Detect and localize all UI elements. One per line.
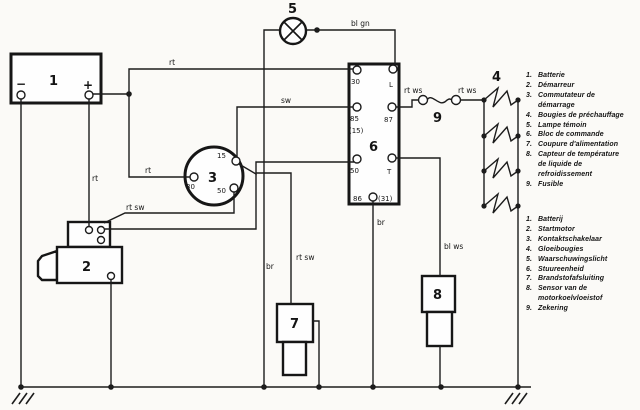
unit-terminal-85 [353,103,361,111]
legend-item-text: Lampe témoin [538,121,587,131]
starter-terminal-b [98,227,105,234]
legend-item: 8.Capteur de température de liquide de r… [526,150,638,180]
battery-minus-terminal [17,91,25,99]
wire-label-rt-top: rt [169,58,175,67]
glow-plug-4-icon [484,194,518,213]
legend-item-number: 7. [526,274,538,284]
unit-terminal-86 [369,193,377,201]
wire-label-rt-sw-cutoff: rt sw [296,253,314,262]
unit-86-label: 86 [353,195,362,203]
legend-french: 1.Batterie2.Démarreur3.Commutateur de dé… [526,71,638,190]
unit-terminal-87 [388,103,396,111]
legend-item-number: 5. [526,255,538,265]
unit-T-label: T [386,168,392,176]
legend-item: 5.Lampe témoin [526,121,638,131]
fuel-cutoff-id: 7 [290,317,299,332]
wire-label-bl-ws: bl ws [444,242,463,251]
unit-87-label: 87 [384,116,393,124]
fuse-terminal-left [419,96,428,105]
wire-label-sw: sw [281,96,291,105]
unit-85-label: 85 [350,115,359,123]
battery-id: 1 [49,74,58,89]
wire-bl-gn-lamp-unitL [306,30,395,65]
legend-item: 4.Gloeibougies [526,245,638,255]
ground-symbol-left [12,393,34,404]
warning-lamp-icon [280,18,306,44]
switch-terminal-15 [232,157,240,165]
legend-item-text: Bougies de préchauffage [538,111,624,121]
glow-plug-2-icon [484,124,518,143]
switch-id: 3 [208,171,217,186]
control-unit-id: 6 [369,140,378,155]
lamp-id: 5 [288,2,297,17]
starter-ground-terminal [108,273,115,280]
legend-item: 5.Waarschuwingslicht [526,255,638,265]
unit-terminal-50 [353,155,361,163]
legend-item-number: 4. [526,111,538,121]
legend-item-number: 2. [526,81,538,91]
unit-terminal-30 [353,66,361,74]
wire-label-bl-gn: bl gn [351,19,370,28]
wire-label-rt-mid: rt [145,166,151,175]
wiring-diagram-page: 1 − + 2 3 4 5 6 7 8 9 15 30 50 30 L 85 (… [0,0,640,410]
switch-terminal-30 [190,173,198,181]
ground-symbol-right [505,393,527,404]
legend-item-number: 6. [526,130,538,140]
legend-item: 6.Stuureenheid [526,265,638,275]
legend-item-number: 3. [526,91,538,111]
unit-terminal-T [388,154,396,162]
legend-item: 9.Fusible [526,180,638,190]
legend-item: 8.Sensor van de motorkoelvloeistof [526,284,638,304]
wire-label-br-unit: br [377,218,386,227]
temp-sensor-lower-box [427,312,452,346]
legend-item-text: Kontaktschakelaar [538,235,602,245]
unit-31-label: (31) [378,195,393,203]
legend-item: 4.Bougies de préchauffage [526,111,638,121]
wiring-diagram: 1 − + 2 3 4 5 6 7 8 9 15 30 50 30 L 85 (… [0,0,640,410]
legend-item-number: 1. [526,215,538,225]
legend-item-text: Démarreur [538,81,574,91]
legend-item: 1.Batterie [526,71,638,81]
legend-item: 7.Coupure d'alimentation [526,140,638,150]
legend-item-text: Brandstofafsluiting [538,274,604,284]
legend-item-text: Batterie [538,71,565,81]
legend-item-number: 6. [526,265,538,275]
switch-50-label: 50 [217,187,226,195]
switch-30-label: 30 [186,183,195,191]
wire-label-rt-ws-right: rt ws [458,86,477,95]
legend-item: 6.Bloc de commande [526,130,638,140]
legend-item-text: Commutateur de démarrage [538,91,595,111]
legend-item-text: Batterij [538,215,563,225]
legend-item-number: 7. [526,140,538,150]
fuel-cutoff-lower-box [283,342,306,375]
glow-plug-1-icon [484,88,518,107]
legend-item-number: 4. [526,245,538,255]
legend-item-text: Capteur de température de liquide de ref… [538,150,619,180]
legend-item-text: Stuureenheid [538,265,584,275]
starter-nose [38,251,57,280]
temp-sensor-id: 8 [433,288,442,303]
battery-plus-terminal [85,91,93,99]
legend-item: 2.Démarreur [526,81,638,91]
glow-plug-3-icon [484,159,518,178]
fuse-terminal-right [452,96,461,105]
wire-label-rt-sw-starter: rt sw [126,203,144,212]
legend-item-text: Waarschuwingslicht [538,255,607,265]
fuel-cutoff [277,304,313,375]
legend-item-text: Fusible [538,180,563,190]
wire-label-rt-ws-left: rt ws [404,86,423,95]
unit-50-label: 50 [350,167,359,175]
legend-item-number: 2. [526,225,538,235]
wire-label-rt-batt: rt [92,174,98,183]
wire-rt-to-unit-30 [129,69,354,94]
temp-sensor [422,276,455,346]
legend-item-number: 5. [526,121,538,131]
wire-rt-sw-to-fuel-cutoff [256,173,291,304]
fuse-id: 9 [433,111,442,126]
legend-item-text: Zekering [538,304,568,314]
legend-item-text: Coupure d'alimentation [538,140,618,150]
legend-item-number: 3. [526,235,538,245]
legend-item: 3.Kontaktschakelaar [526,235,638,245]
unit-terminal-L [389,65,397,73]
wire-switch15-unit50 [239,162,354,174]
switch-15-label: 15 [217,152,226,160]
legend-item-text: Startmotor [538,225,575,235]
starter-terminal-c [98,237,105,244]
battery-plus-sign: + [83,78,93,92]
starter-terminal-a [86,227,93,234]
starter-id: 2 [82,260,91,275]
wire-sw-switch15-unit85 [237,107,354,160]
glow-plugs-id: 4 [492,70,501,85]
legend-item-number: 9. [526,180,538,190]
battery-minus-sign: − [16,77,26,91]
legend-item: 3.Commutateur de démarrage [526,91,638,111]
legend-item-number: 9. [526,304,538,314]
unit-15-label: (15) [349,127,364,135]
fuse-element [427,98,452,103]
unit-L-label: L [389,81,393,89]
wire-label-br-lamp: br [266,262,275,271]
legend-item-text: Gloeibougies [538,245,584,255]
wire-bl-ws-unitT-sensor [396,158,440,276]
legend-item-number: 8. [526,150,538,180]
legend-item: 7.Brandstofafsluiting [526,274,638,284]
legend-item-number: 8. [526,284,538,304]
legend-item-text: Sensor van de motorkoelvloeistof [538,284,602,304]
legend-dutch: 1.Batterij2.Startmotor3.Kontaktschakelaa… [526,215,638,314]
legend-item: 1.Batterij [526,215,638,225]
unit-30-label: 30 [351,78,360,86]
switch-terminal-50 [230,184,238,192]
legend-item: 9.Zekering [526,304,638,314]
legend-item-number: 1. [526,71,538,81]
legend-item: 2.Startmotor [526,225,638,235]
legend-item-text: Bloc de commande [538,130,604,140]
wire-rt-to-switch-30 [129,94,190,177]
